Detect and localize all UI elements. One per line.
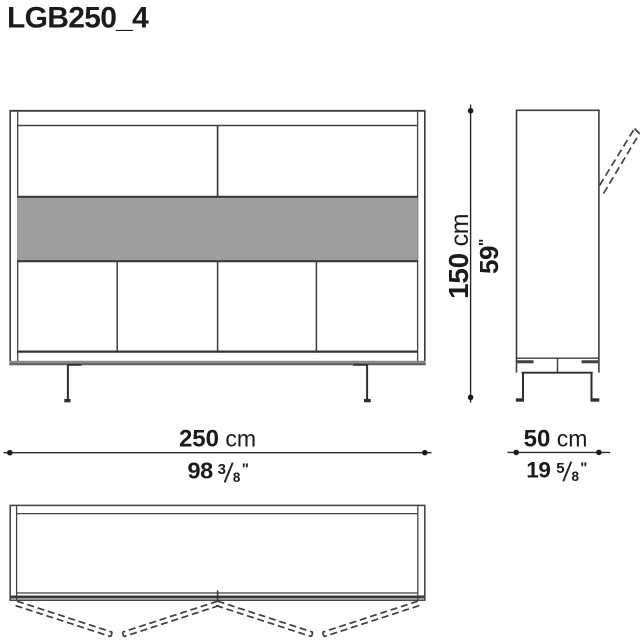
svg-text:LGB250_4: LGB250_4 — [7, 2, 149, 35]
svg-text:": " — [580, 459, 587, 476]
svg-text:150 cm: 150 cm — [443, 214, 474, 299]
svg-text:3: 3 — [218, 461, 226, 478]
svg-text:19: 19 — [526, 458, 550, 483]
svg-text:5: 5 — [556, 460, 564, 477]
svg-text:8: 8 — [572, 469, 580, 484]
svg-text:250 cm: 250 cm — [179, 425, 256, 452]
svg-text:8: 8 — [233, 470, 241, 485]
svg-text:": " — [242, 460, 249, 477]
svg-text:98: 98 — [188, 458, 214, 484]
svg-text:50 cm: 50 cm — [524, 425, 588, 452]
